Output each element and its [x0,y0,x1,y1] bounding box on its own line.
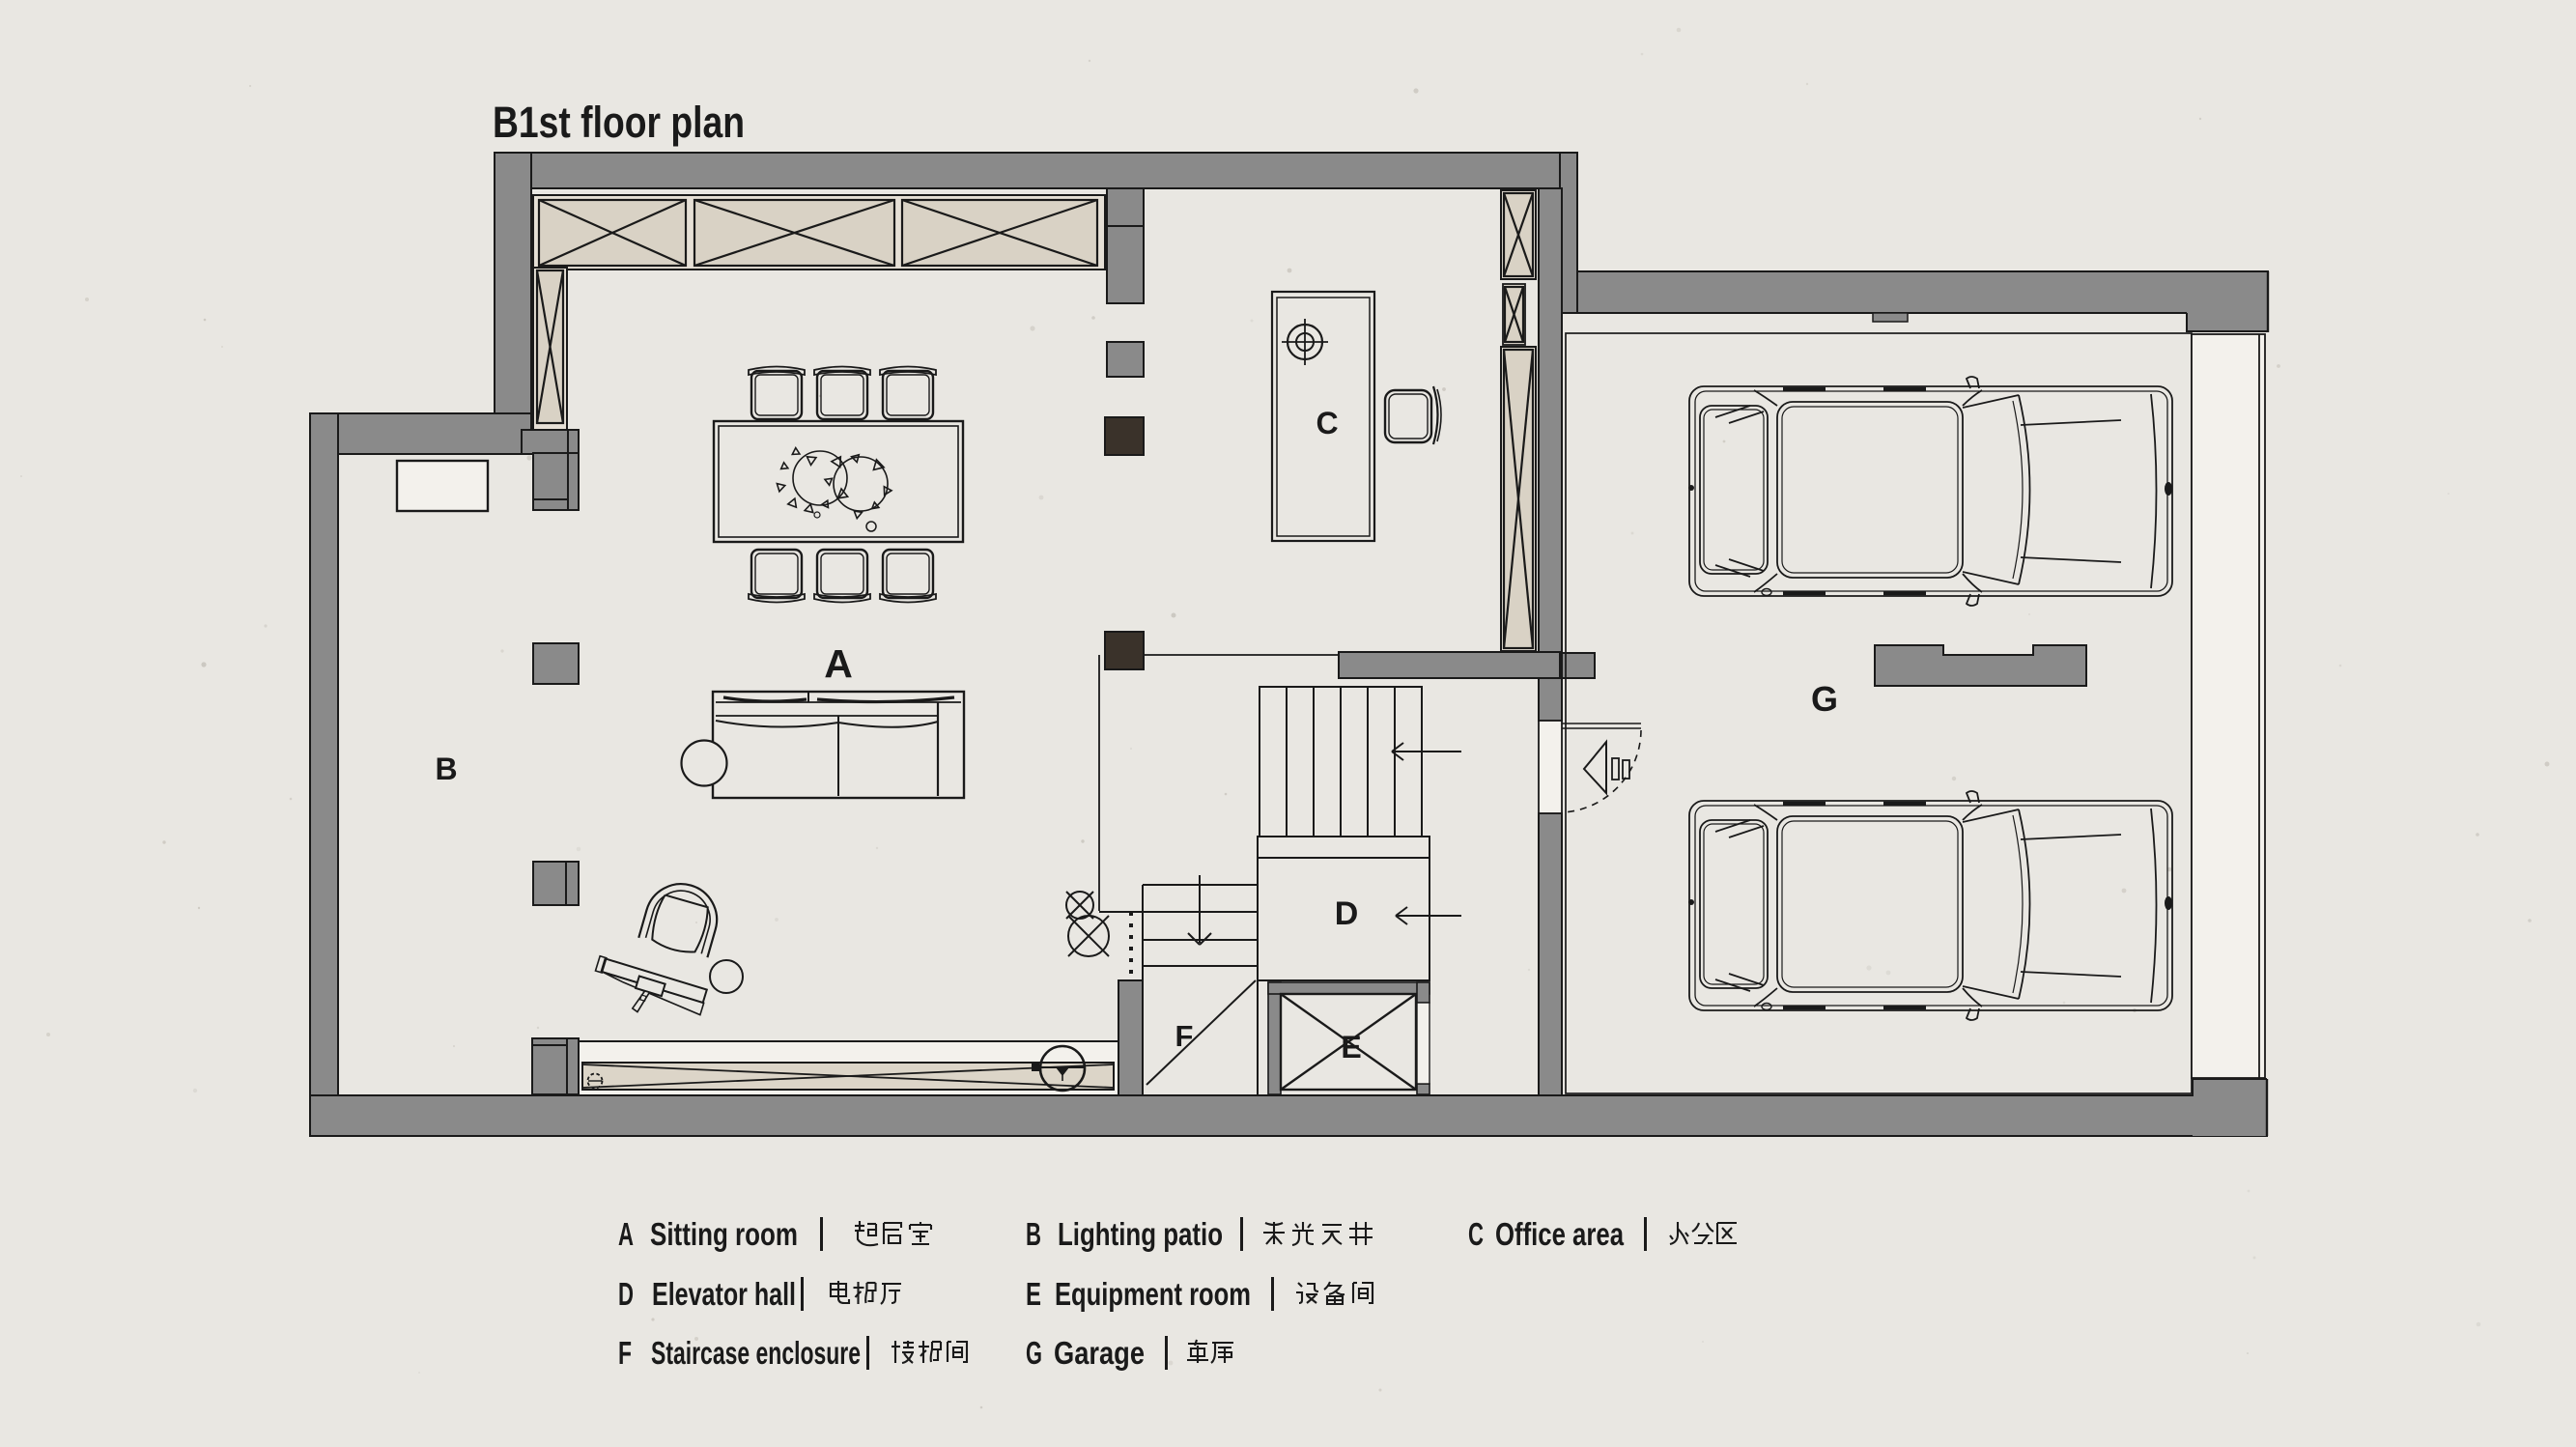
svg-text:A: A [824,641,853,686]
svg-text:B1st floor plan: B1st floor plan [493,98,745,147]
svg-text:Garage: Garage [1054,1335,1145,1371]
svg-text:Office area: Office area [1495,1216,1625,1252]
svg-text:B: B [1026,1216,1041,1252]
svg-text:E: E [1341,1030,1361,1064]
svg-text:A: A [618,1216,634,1252]
svg-text:Sitting room: Sitting room [650,1216,798,1252]
svg-text:Elevator hall: Elevator hall [652,1276,796,1312]
svg-text:E: E [1026,1276,1041,1312]
svg-text:D: D [618,1276,634,1312]
svg-text:G: G [1811,679,1838,719]
svg-text:G: G [1026,1335,1042,1371]
svg-text:F: F [618,1335,632,1371]
svg-text:C: C [1468,1216,1484,1252]
svg-text:D: D [1335,895,1359,932]
svg-text:F: F [1175,1019,1194,1053]
svg-text:Lighting patio: Lighting patio [1058,1216,1223,1252]
svg-text:Equipment room: Equipment room [1055,1276,1251,1312]
svg-text:B: B [435,752,457,786]
svg-text:C: C [1316,406,1338,440]
svg-text:Staircase enclosure: Staircase enclosure [651,1335,861,1371]
